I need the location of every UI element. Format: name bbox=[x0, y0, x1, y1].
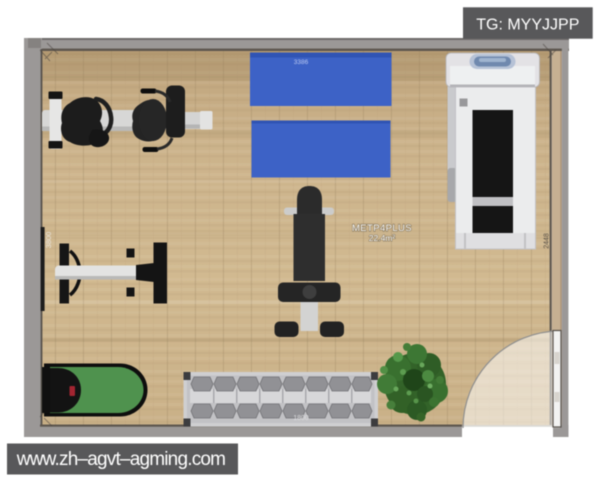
svg-text:22.4m²: 22.4m² bbox=[369, 233, 396, 243]
svg-text:1800: 1800 bbox=[293, 415, 309, 422]
svg-text:2448: 2448 bbox=[544, 233, 551, 249]
svg-text:3386: 3386 bbox=[294, 59, 309, 66]
svg-text:3800: 3800 bbox=[44, 232, 53, 249]
svg-text:TG: MYYJJPP: TG: MYYJJPP bbox=[476, 17, 579, 34]
svg-text:www.zh–agvt–agming.com: www.zh–agvt–agming.com bbox=[16, 449, 225, 470]
